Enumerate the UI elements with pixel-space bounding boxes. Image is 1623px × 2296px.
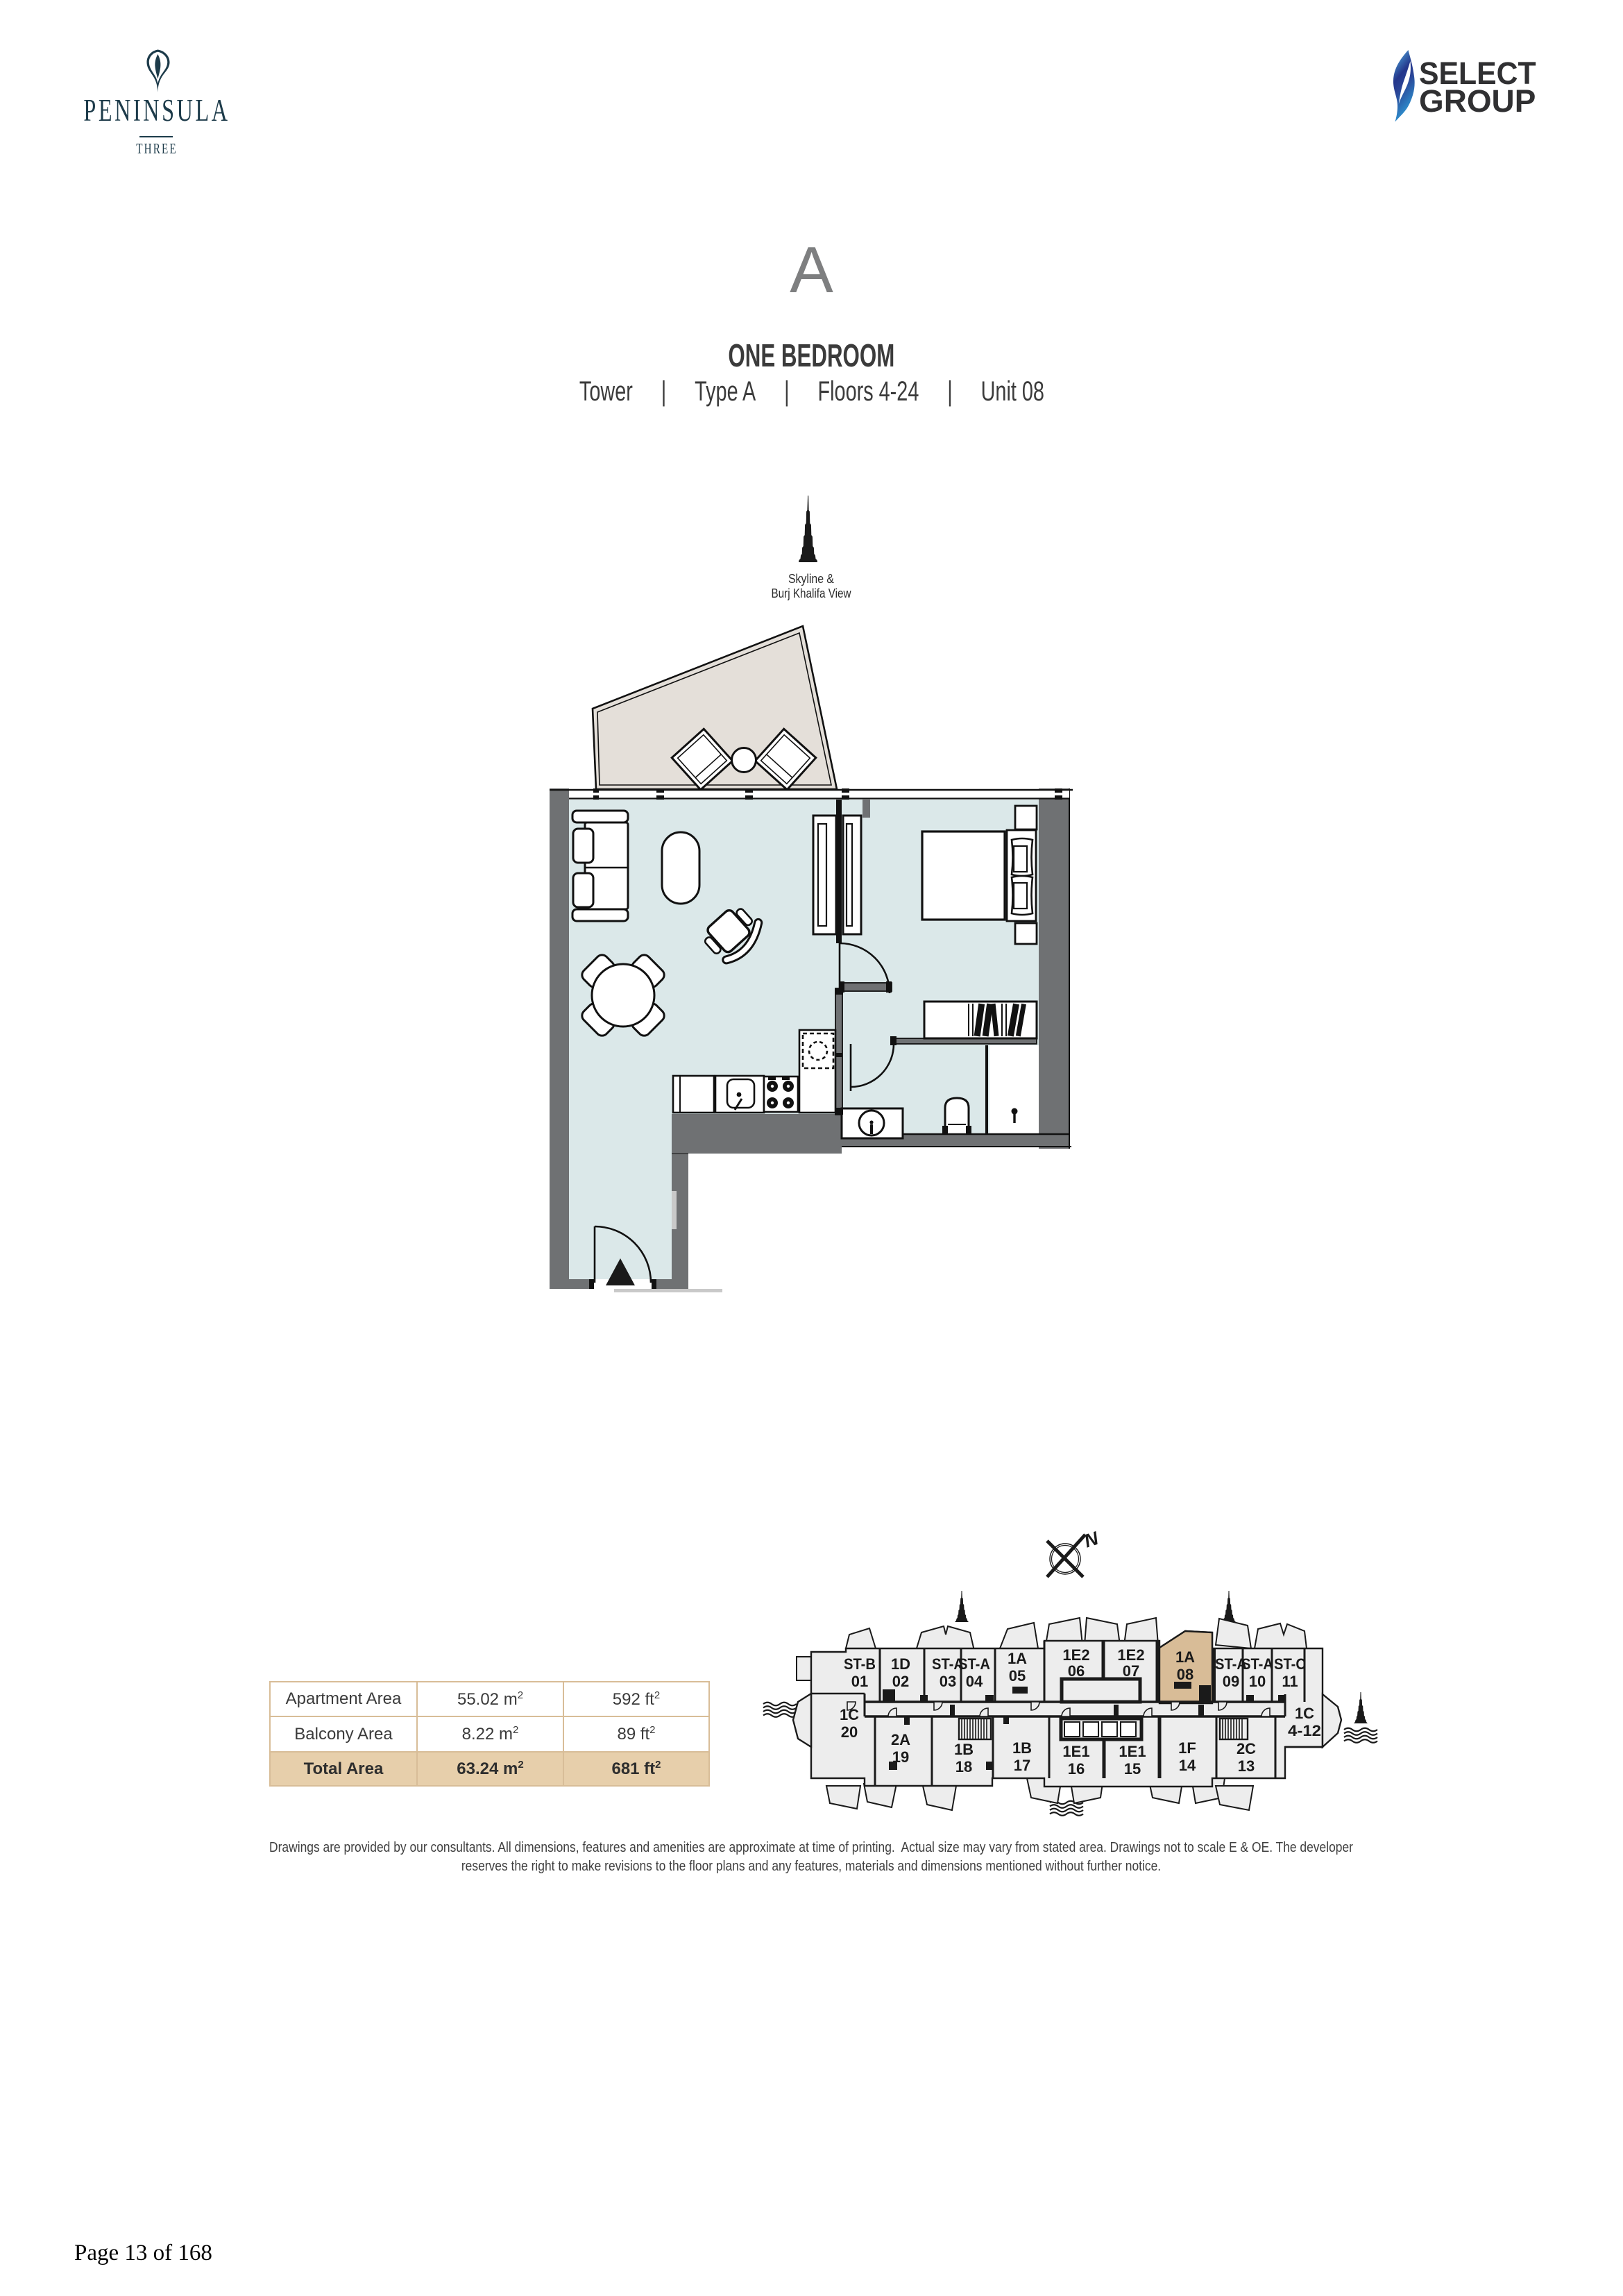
svg-text:4-12: 4-12 [1288, 1722, 1321, 1739]
svg-text:2A: 2A [891, 1731, 910, 1748]
svg-text:14: 14 [1179, 1757, 1196, 1774]
svg-text:04: 04 [966, 1673, 983, 1690]
svg-text:02: 02 [892, 1673, 909, 1690]
svg-text:1E2: 1E2 [1062, 1646, 1089, 1664]
svg-text:1D: 1D [891, 1655, 910, 1673]
svg-text:15: 15 [1124, 1760, 1141, 1778]
svg-text:1E1: 1E1 [1062, 1743, 1089, 1760]
svg-text:N: N [1082, 1528, 1101, 1552]
svg-text:07: 07 [1123, 1662, 1139, 1680]
svg-text:ST-B: ST-B [844, 1655, 876, 1673]
svg-text:1F: 1F [1178, 1739, 1196, 1757]
svg-text:1C: 1C [1295, 1705, 1314, 1722]
svg-text:13: 13 [1238, 1757, 1255, 1775]
svg-text:1A: 1A [1008, 1650, 1027, 1667]
svg-text:18: 18 [955, 1758, 972, 1775]
svg-text:01: 01 [851, 1673, 868, 1690]
svg-text:16: 16 [1068, 1760, 1085, 1778]
svg-text:1E2: 1E2 [1117, 1646, 1144, 1664]
svg-text:Skyline &: Skyline & [788, 571, 835, 586]
svg-text:ST-C: ST-C [1274, 1655, 1306, 1673]
svg-text:09: 09 [1223, 1673, 1239, 1690]
svg-text:19: 19 [892, 1748, 909, 1766]
svg-text:06: 06 [1068, 1662, 1085, 1680]
svg-text:1C: 1C [840, 1706, 859, 1723]
svg-text:1A: 1A [1175, 1648, 1195, 1666]
svg-text:08: 08 [1177, 1666, 1193, 1683]
svg-text:03: 03 [940, 1673, 956, 1690]
svg-text:20: 20 [841, 1723, 858, 1741]
svg-text:ST-A: ST-A [1241, 1655, 1273, 1673]
svg-text:ST-A: ST-A [958, 1655, 990, 1673]
svg-text:1B: 1B [954, 1741, 974, 1758]
svg-text:05: 05 [1009, 1667, 1026, 1685]
svg-text:2C: 2C [1237, 1740, 1256, 1757]
svg-text:10: 10 [1249, 1673, 1266, 1690]
svg-text:Burj Khalifa View: Burj Khalifa View [772, 586, 852, 600]
svg-text:17: 17 [1014, 1757, 1030, 1774]
svg-text:11: 11 [1282, 1673, 1298, 1690]
svg-text:1B: 1B [1012, 1739, 1032, 1757]
svg-text:1E1: 1E1 [1119, 1743, 1146, 1760]
